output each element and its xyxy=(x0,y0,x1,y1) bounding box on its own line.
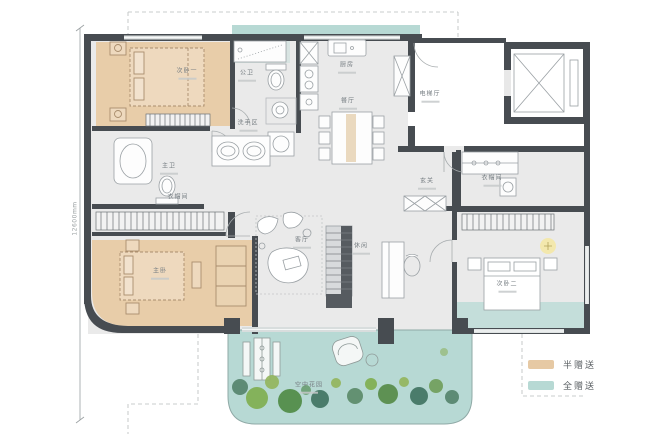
elevator-cab xyxy=(514,54,578,112)
floorplan-canvas: 次卧一 公卫 洗手区 主卫 衣帽间 主卧 厨房 餐厅 电梯厅 玄关 衣帽间 次卧… xyxy=(0,0,657,434)
legend: 半赠送 全赠送 xyxy=(528,358,596,400)
legend-swatch-half-gift xyxy=(528,360,554,369)
label-master-bath: 主卫 xyxy=(160,164,178,175)
legend-row-half: 半赠送 xyxy=(528,358,596,371)
label-living: 客厅 xyxy=(293,238,311,249)
legend-label-full-gift: 全赠送 xyxy=(563,379,596,392)
label-leisure: 休闲 xyxy=(352,244,370,255)
label-cloakroom: 衣帽间 xyxy=(481,176,502,187)
label-guest-bath: 公卫 xyxy=(238,71,256,82)
left-dimension-text: 12600mm xyxy=(72,201,79,235)
legend-swatch-full-gift xyxy=(528,381,554,390)
label-master-bedroom: 主卧 xyxy=(151,269,169,280)
stairs-grid xyxy=(326,226,352,308)
label-sky-garden: 空中花园 xyxy=(295,383,323,394)
label-master-closet: 衣帽间 xyxy=(167,195,188,202)
label-kitchen: 厨房 xyxy=(338,63,356,74)
legend-label-half-gift: 半赠送 xyxy=(563,358,596,371)
north-gift-strip xyxy=(232,25,420,35)
label-bedroom-2: 次卧二 xyxy=(496,282,517,293)
legend-row-full: 全赠送 xyxy=(528,379,596,392)
label-bedroom-1: 次卧一 xyxy=(176,69,197,80)
label-foyer: 玄关 xyxy=(418,179,436,190)
label-wash-area: 洗手区 xyxy=(237,121,258,132)
label-elevator-hall: 电梯厅 xyxy=(419,92,440,103)
label-dining: 餐厅 xyxy=(339,99,357,110)
